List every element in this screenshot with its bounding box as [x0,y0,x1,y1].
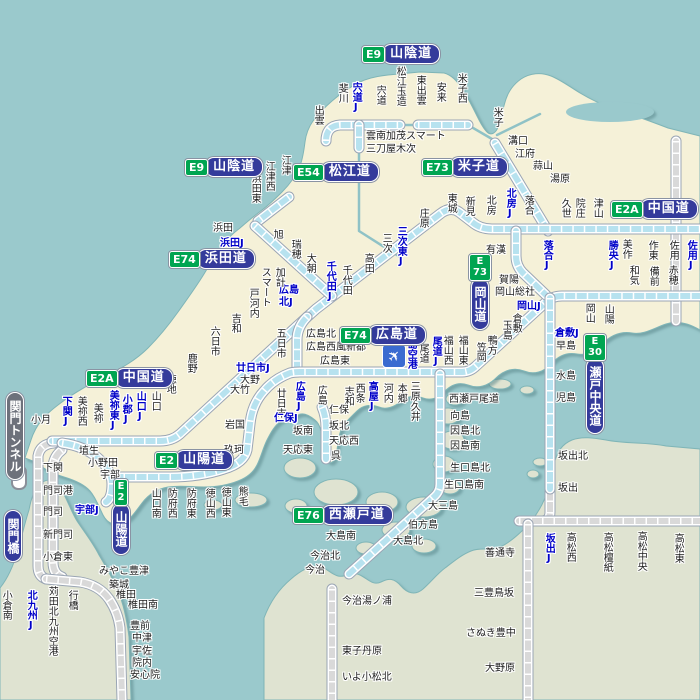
station-label-15: 新見 [463,196,474,216]
station-label-3: 宍道 [374,85,385,105]
station-label-132: 宇部J [75,505,99,516]
station-label-84: 今治湯ノ浦 [342,596,392,607]
station-label-59: 志和 [342,386,353,406]
station-label-24: 勝央J [606,240,617,271]
station-label-23: 落合J [541,240,552,271]
station-label-18: 落合 [522,195,533,215]
station-label-17: 北房J [504,188,515,219]
airport-icon: ✈ [382,344,406,368]
station-label-97: 庄原 [417,208,428,228]
station-label-104: 加計 [273,267,284,287]
route-name-capsule: 松江道 [321,162,379,182]
station-label-27: 佐用 [667,240,678,260]
route-number-shield: E54 [293,164,324,181]
station-label-154: 浜田東 [249,173,260,203]
station-label-146: 椎田南 [128,600,158,611]
station-label-141: 苅田北九州空港 [46,586,57,656]
station-label-50: 尾道 [417,343,428,363]
station-label-153: 江津西 [263,161,274,191]
station-label-90: 大野原 [485,663,515,674]
route-name-capsule: 関門橋 [4,510,22,562]
station-label-45: 鴨方 [485,335,496,355]
station-label-14: 湯原 [550,174,570,185]
station-label-11: 溝口 [508,136,528,147]
station-label-82: 今治北 [310,551,340,562]
station-label-78: 大三島 [428,501,458,512]
station-label-89: さぬき豊中 [466,628,516,639]
station-label-69: 天応西 [329,436,359,447]
route-badge-E2A-5: E2A中国道 [611,199,698,219]
station-label-52: 広島北 [306,329,336,340]
station-label-40: 児島 [556,393,576,404]
station-label-29: 和気 [627,265,638,285]
station-label-119: 美祢 [91,403,102,423]
station-label-140: 北九州J [25,590,36,631]
station-label-21: 津山 [591,198,602,218]
road-kure-road [322,407,326,459]
station-label-120: 美祢東J [107,390,118,431]
station-label-122: 山口J [134,391,145,422]
station-label-114: 大竹 [230,385,250,396]
route-name-capsule: 瀬戸中央道 [586,358,604,434]
route-name-capsule: 中国道 [115,368,173,388]
station-label-76: 生口島北 [450,463,490,474]
route-badge-E76-9: E76西瀬戸道 [293,505,393,525]
route-badge--13: 関門トンネル [6,392,24,480]
station-label-0: 出雲 [312,105,323,125]
station-label-31: 赤穂 [666,265,677,285]
station-label-65: 仁保J [274,413,298,424]
route-number-shield: E30 [584,334,606,361]
station-label-111: 山口 [149,391,160,411]
station-label-32: 賀陽 [499,275,519,286]
station-label-136: 門司 [43,507,63,518]
station-label-88: 三豊鳥坂 [474,588,514,599]
route-number-shield: E74 [169,251,200,268]
station-label-81: 大島南 [326,531,356,542]
station-label-106: 戸河内 [247,288,258,318]
station-label-102: 千代田J [324,261,335,302]
station-label-34: 岡山J [517,301,541,312]
station-label-147: 豊前 [130,621,150,632]
station-label-37: 倉敷J [555,328,579,339]
station-label-129: 埴生 [79,446,99,457]
station-label-127: 徳山東 [219,487,230,517]
station-label-91: 坂出J [543,533,554,564]
route-number-shield: E73 [469,254,491,281]
station-label-100: 高田 [362,253,373,273]
station-label-43: 倉敷 [510,313,521,333]
station-label-12: 江府 [515,149,535,160]
route-number-shield: E9 [185,159,208,176]
expressway-map: 出雲斐川宍道J宍道松江玉造東出雲安来米子西米子雲南加茂スマート三刀屋木次溝口江府… [0,0,700,700]
route-name-capsule: 広島道 [368,325,426,345]
station-label-103: 広島北J [279,285,307,309]
station-label-10: 三刀屋木次 [366,144,416,155]
station-label-125: 防府東 [184,488,195,518]
station-label-79: 伯方島 [408,520,438,531]
station-label-142: 行橋 [66,590,77,610]
route-badge--14: 関門橋 [4,510,22,562]
station-label-148: 中津 [132,633,152,644]
station-label-75: 因島南 [450,441,480,452]
route-number-shield: E2 [155,452,178,469]
route-badge-E54-1: E54松江道 [293,162,379,182]
station-label-137: 新門司 [43,530,73,541]
station-label-93: 高松檀紙 [601,532,612,572]
route-badge-E73-11: E73岡山道 [469,254,491,330]
station-label-159: 大朝 [304,253,315,273]
station-label-71: 呉 [331,451,341,462]
station-label-58: 広島 [315,385,326,405]
route-badge-E74-7: E74広島道 [340,325,426,345]
route-number-shield: E73 [422,159,453,176]
lake-nakaumi [566,102,654,122]
station-label-61: 高屋J [366,381,377,412]
station-label-20: 院庄 [573,198,584,218]
station-label-133: 小月 [31,415,51,426]
station-label-135: 門司港 [43,486,73,497]
station-label-157: 旭 [271,229,282,239]
station-label-48: 福山西 [441,335,452,365]
route-name-capsule: 浜田道 [197,249,255,269]
route-badge-E2-10: E2山陽道 [112,479,130,555]
route-number-shield: E76 [293,507,324,524]
station-label-36: 山陽 [602,304,613,324]
station-label-158: 瑞穂 [289,239,300,259]
station-label-8: 米子 [491,107,502,127]
station-label-38: 早島 [556,341,576,352]
station-label-72: 西瀬戸尾道 [449,394,499,405]
route-name-capsule: 米子道 [450,157,508,177]
station-label-138: 小倉東 [43,552,73,563]
station-label-99: 三次 [380,233,391,253]
station-label-41: 坂出北 [558,451,588,462]
station-label-66: 仁保 [329,405,349,416]
station-label-150: 院内 [132,658,152,669]
station-label-44: 玉島 [500,320,511,340]
station-label-49: 尾道J [430,336,441,367]
route-name-capsule: 岡山道 [471,278,489,330]
route-number-shield: E2A [611,201,643,218]
station-label-107: 吉和 [229,313,240,333]
station-label-134: 下関 [43,463,63,474]
station-label-62: 河内 [381,383,392,403]
station-label-112: 廿日市J [236,363,270,374]
station-label-6: 安来 [434,82,445,102]
station-label-63: 本郷 [395,383,406,403]
route-badge-E30-12: E30瀬戸中央道 [584,334,606,434]
station-label-28: 佐用J [685,240,696,271]
station-label-9: 雲南加茂スマート [366,131,446,142]
station-label-86: いよ小松北 [342,672,392,683]
station-label-108: 六日市 [208,326,219,356]
route-badge-E9-0: E9山陰道 [362,44,440,64]
station-label-115: 岩国 [225,420,245,431]
station-label-85: 東子丹原 [342,646,382,657]
route-name-capsule: 関門トンネル [6,392,24,480]
route-badge-E9-3: E9山陰道 [185,157,263,177]
station-label-95: 高松東 [672,533,683,563]
station-label-56: 広島J [293,381,304,412]
station-label-101: 千代田 [340,265,351,295]
station-label-5: 東出雲 [414,75,425,105]
route-badge-E2A-6: E2A中国道 [86,368,173,388]
station-label-121: 小郡J [120,394,131,425]
station-label-124: 防府西 [165,488,176,518]
station-label-139: 小倉南 [0,590,11,620]
route-badge-E74-4: E74浜田道 [169,249,255,269]
station-label-130: 小野田 [88,458,118,469]
station-label-46: 笠岡 [474,342,485,362]
station-label-149: 宇佐 [132,646,152,657]
station-label-123: 山口南 [149,488,160,518]
station-label-118: 美祢西 [75,396,86,426]
station-label-96: 東城 [445,193,456,213]
station-label-26: 作東 [646,240,657,260]
route-name-capsule: 西瀬戸道 [321,505,393,525]
station-label-109: 鹿野 [185,353,196,373]
route-number-shield: E2A [86,370,118,387]
station-label-143: みやこ豊津 [99,566,149,577]
station-label-68: 坂南 [293,426,313,437]
station-label-39: 水島 [556,371,576,382]
station-label-80: 大島北 [393,536,423,547]
station-label-35: 岡山 [583,303,594,323]
route-name-capsule: 山陰道 [382,44,440,64]
station-label-67: 坂北 [329,421,349,432]
station-label-126: 徳山西 [203,488,214,518]
station-label-60: 西条 [353,383,364,403]
station-label-83: 今治 [305,565,325,576]
station-label-152: 江津 [279,155,290,175]
station-label-117: 下関J [60,396,71,427]
station-label-77: 生口島南 [444,480,484,491]
station-label-47: 福山東 [456,335,467,365]
station-label-54: 広島東 [320,356,350,367]
station-label-128: 熊毛 [236,486,247,506]
route-name-capsule: 山陽道 [112,503,130,555]
route-name-capsule: 山陽道 [175,450,233,470]
station-label-30: 備前 [647,266,658,286]
route-name-capsule: 山陰道 [205,157,263,177]
station-label-156: 浜田J [220,238,244,249]
route-number-shield: E2 [114,479,129,506]
route-number-shield: E74 [340,327,371,344]
station-label-42: 坂出 [558,483,578,494]
station-label-64: 三原久井 [408,381,419,421]
station-label-13: 蒜山 [533,161,553,172]
route-badge-E2-8: E2山陽道 [155,450,233,470]
station-label-19: 久世 [559,198,570,218]
station-label-1: 斐川 [336,83,347,103]
route-number-shield: E9 [362,46,385,63]
station-label-33: 岡山総社 [495,287,535,298]
station-label-151: 安心院 [130,670,160,681]
station-label-87: 善通寺 [485,548,515,559]
station-label-16: 北房 [484,195,495,215]
station-label-98: 三次東J [395,226,406,267]
station-label-55: 五日市 [274,328,285,358]
station-label-7: 米子西 [455,73,466,103]
station-label-94: 高松中央 [635,531,646,571]
station-label-155: 浜田 [213,223,233,234]
station-label-73: 向島 [450,411,470,422]
station-label-92: 高松西 [564,532,575,562]
station-label-4: 松江玉造 [394,66,405,106]
station-label-74: 因島北 [450,426,480,437]
station-label-2: 宍道J [350,82,361,113]
station-label-105: スマート [259,267,270,307]
route-name-capsule: 中国道 [640,199,698,219]
station-label-70: 天応東 [283,445,313,456]
route-badge-E73-2: E73米子道 [422,157,508,177]
station-label-25: 美作 [620,239,631,259]
